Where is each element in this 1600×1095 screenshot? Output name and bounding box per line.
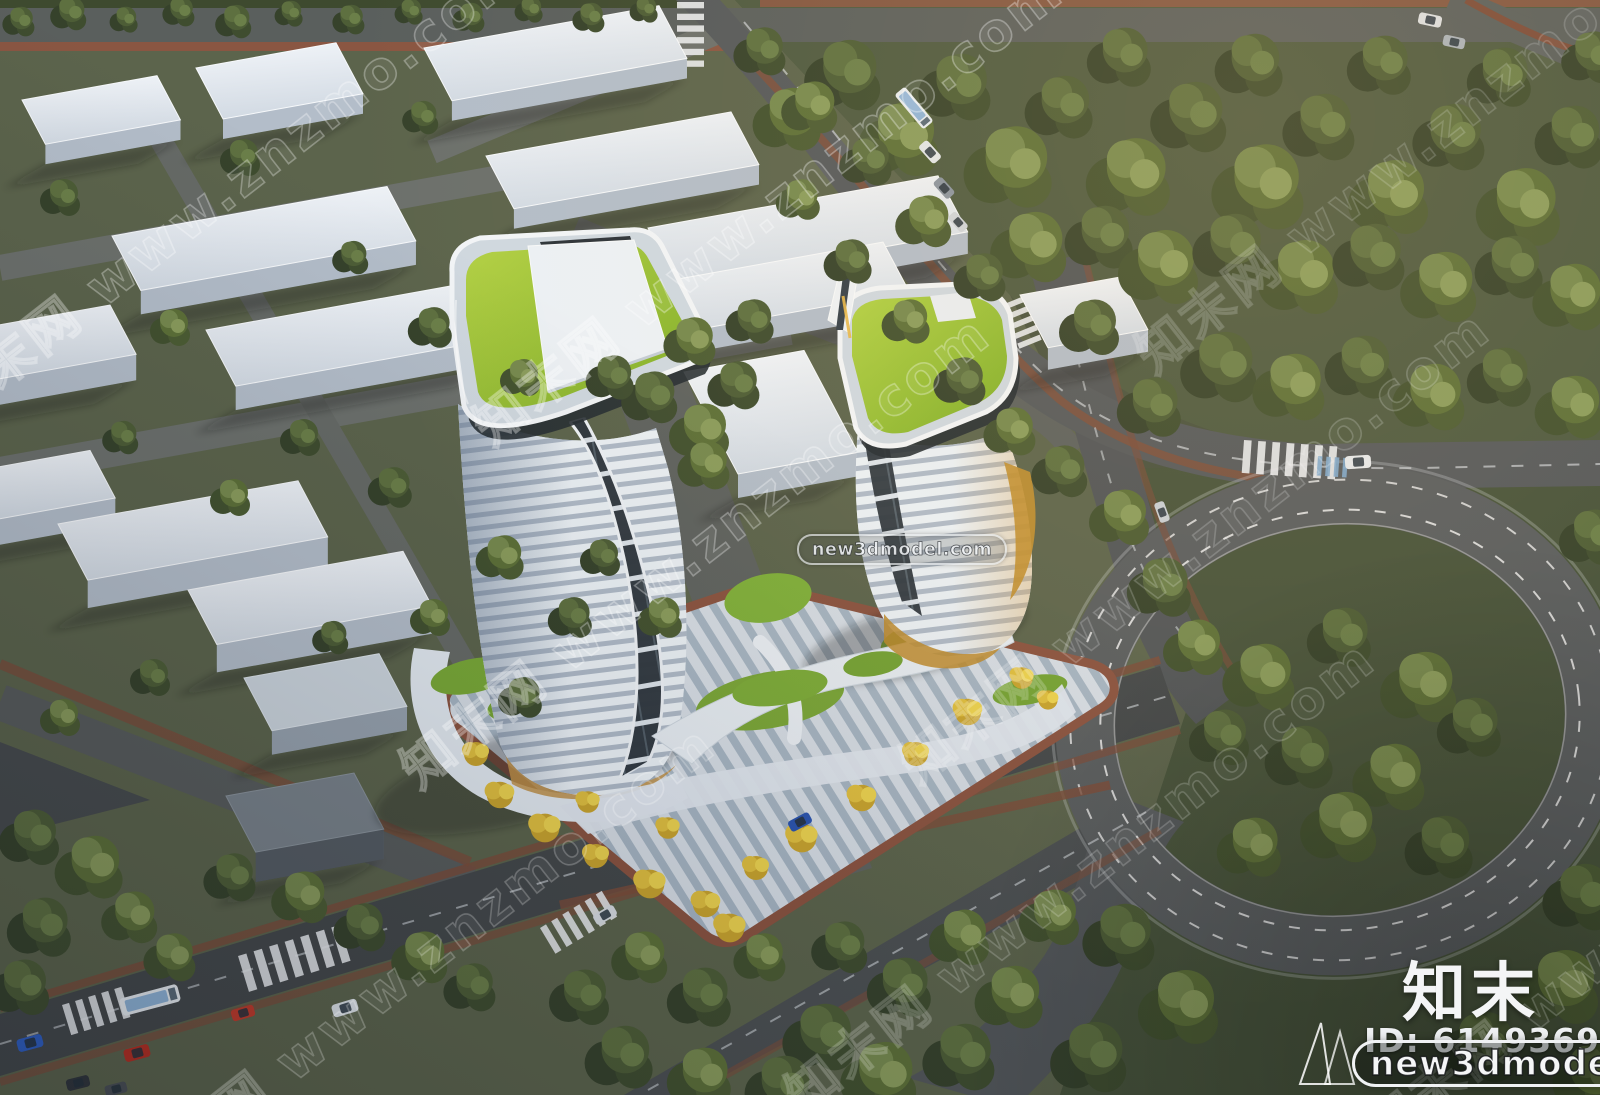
center-watermark-badge: new3dmodel.com bbox=[797, 534, 1007, 565]
brand-site-badge: new3dmodel.com bbox=[1352, 1040, 1600, 1087]
render-canvas: 知末网 www.znzmo.com 知末网 www.znzmo.com 知末网 … bbox=[0, 0, 1600, 1095]
